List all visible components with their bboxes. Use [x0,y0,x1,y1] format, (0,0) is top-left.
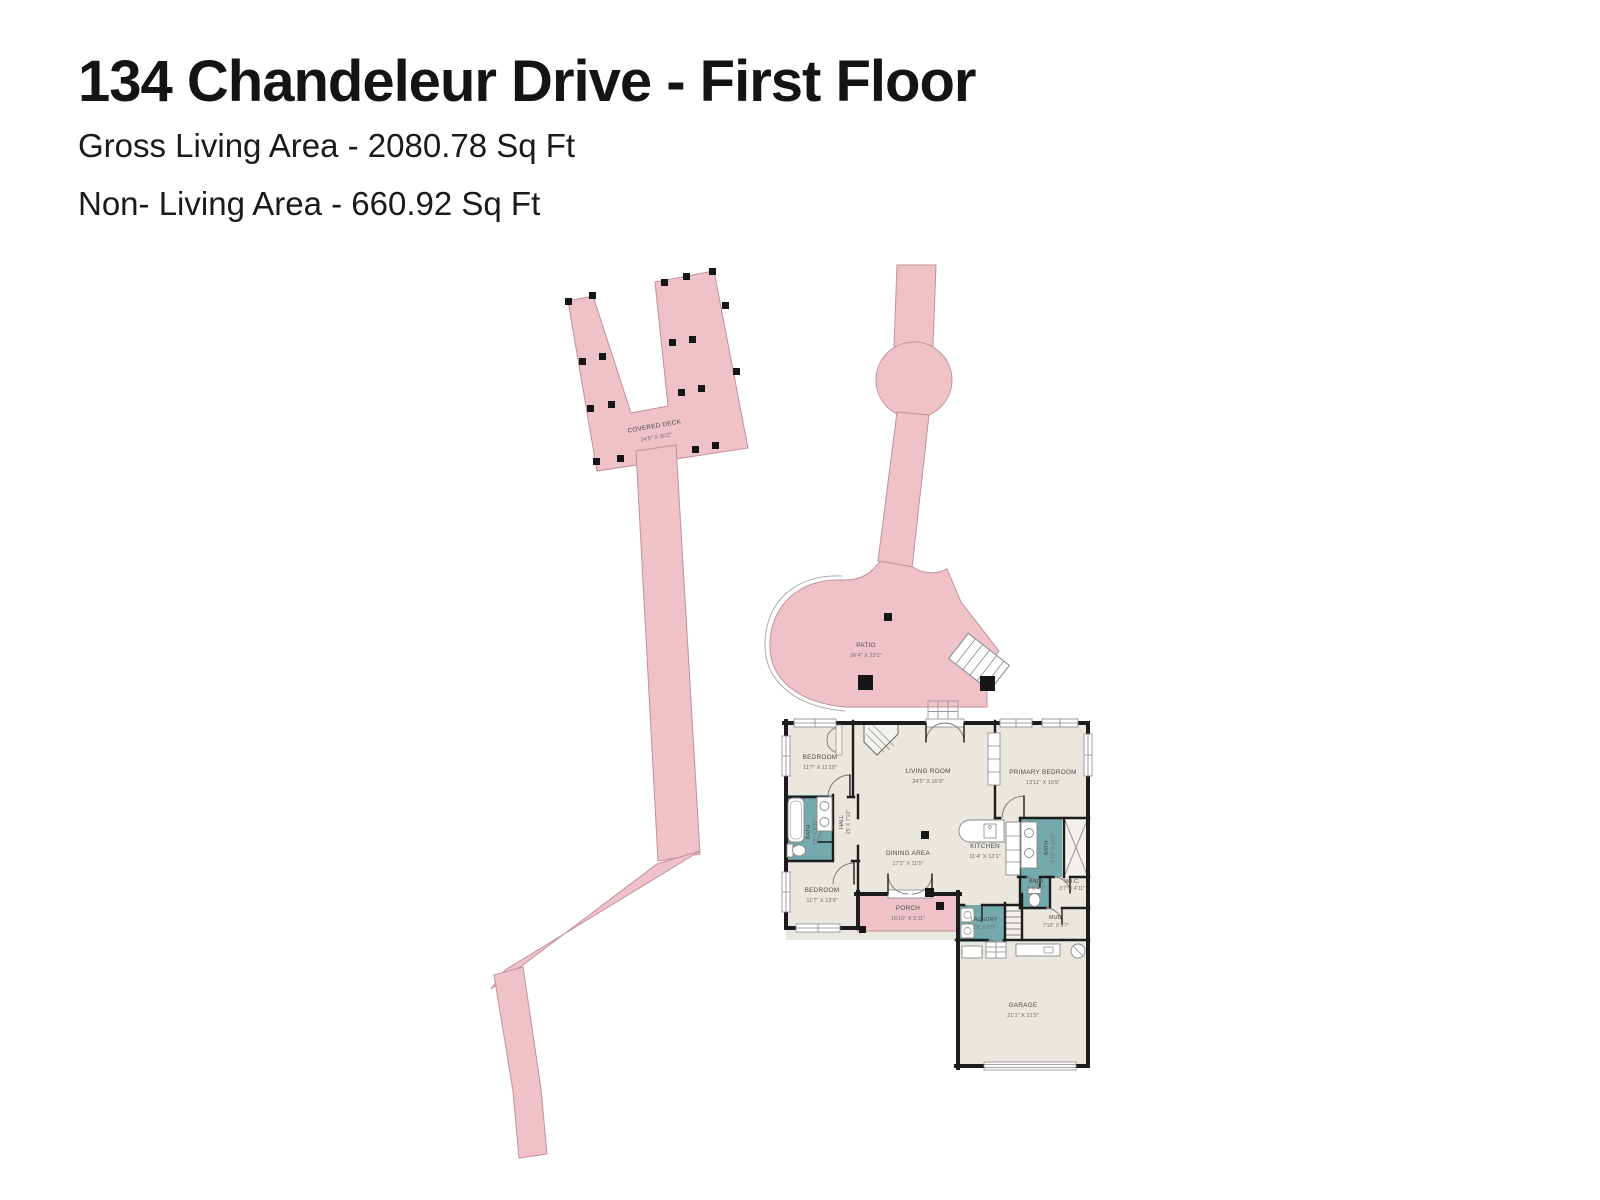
dims-primary-bedroom: 13'11" X 16'5" [1026,780,1060,786]
primary-closet-shelves [988,733,1000,785]
patio-area [770,561,999,707]
floor-plan-canvas: COVERED DECK 24'5" X 30'2" PATIO 36'4" X… [0,0,1600,1200]
kitchen-counter [1006,822,1020,875]
garage-steps [986,942,1006,958]
label-laundry: LAUNDRY [971,917,998,923]
label-kitchen: KITCHEN [970,843,1000,850]
label-wic: W.I.C. [1064,879,1080,885]
label-hall: HALL [839,815,845,829]
dims-laundry: 7'5" X 6'9" [972,925,996,931]
label-primary-bath: BATH [1044,841,1050,856]
walkway-circle [876,342,952,418]
street-walkway-lower [878,412,929,568]
bedroom1-closet [836,725,842,755]
label-bath1: BATH [806,825,812,840]
label-living-room: LIVING ROOM [905,768,950,775]
label-mud: MUD. [1049,915,1064,921]
dims-wic: 3'7" X 4'11" [1059,886,1085,892]
label-bedroom1: BEDROOM [803,754,838,761]
covered-deck [568,271,748,471]
dims-bath1: 7'5" X 9'10" [813,819,819,846]
dims-bath2: 5' X 4'7" [1027,886,1046,892]
garage-door-opening [984,1062,1076,1070]
interior-stairs [1005,905,1022,942]
porch-area [857,893,959,931]
label-primary-bedroom: PRIMARY BEDROOM [1009,769,1076,776]
label-dining: DINING AREA [886,850,930,857]
kitchen-island [959,820,1004,842]
garage-storage [962,946,982,958]
attic-closet [1064,818,1088,877]
dims-primary-bath: 5'10" X 14'3" [1051,833,1057,862]
dims-bedroom2: 11'7" X 13'9" [806,898,837,904]
street-walkway-upper [894,265,936,346]
label-bath2: BATH [1029,879,1044,885]
dims-hall: 25' X 7'10" [846,810,852,835]
floor-plan-page: 134 Chandeleur Drive - First Floor Gross… [0,0,1600,1200]
label-garage: GARAGE [1009,1002,1038,1009]
dims-porch: 16'10" X 5'11" [891,916,925,922]
dims-garage: 21'1" X 21'5" [1007,1013,1039,1019]
label-porch: PORCH [896,905,920,912]
label-patio: PATIO [856,642,875,649]
bath1-toilet [787,844,806,857]
primary-bath-vanity [1021,822,1037,868]
deck-walkway [636,445,700,861]
dims-bedroom1: 11'7" X 11'10" [803,765,837,771]
dims-living-room: 24'5" X 16'9" [912,779,944,785]
dims-kitchen: 11'4" X 13'1" [969,854,1000,860]
dims-mud: 7'10" X 5'7" [1043,923,1070,929]
lower-walkway [494,967,547,1158]
garage-workbench [1016,944,1060,956]
dims-dining: 17'2" X 11'5" [892,861,923,867]
label-bedroom2: BEDROOM [805,887,840,894]
outdoor-areas [491,265,999,1158]
dims-patio: 36'4" X 23'1" [850,653,882,659]
garage-water-heater [1071,944,1085,958]
